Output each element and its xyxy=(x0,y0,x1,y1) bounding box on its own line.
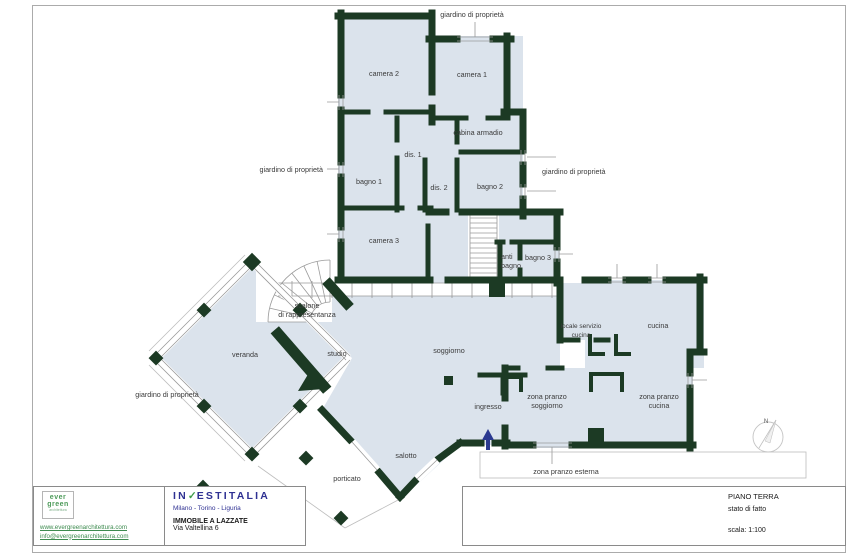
check-icon: ✓ xyxy=(188,490,197,502)
sheet-scale: scala: 1:100 xyxy=(728,527,779,534)
company-cities: Milano - Torino - Liguria xyxy=(173,505,297,512)
drawing-sheet: N camera 2 camera 1 cabina armadio bagno… xyxy=(0,0,853,560)
evergreen-website: www.evergreenarchitettura.com xyxy=(40,524,158,533)
titleblock-company-cell: IN✓ESTITALIA Milano - Torino - Liguria I… xyxy=(165,487,305,545)
evergreen-logo-sub: architettura xyxy=(43,508,73,512)
titleblock-logo-cell: ever green architettura www.evergreenarc… xyxy=(34,487,165,545)
project-name: IMMOBILE A LAZZATE xyxy=(173,518,297,525)
evergreen-email: info@evergreenarchitettura.com xyxy=(40,533,158,542)
evergreen-logo: ever green architettura xyxy=(42,491,74,519)
titleblock-right: PIANO TERRA stato di fatto scala: 1:100 xyxy=(462,486,846,546)
sheet-status: stato di fatto xyxy=(728,506,779,513)
sheet-border xyxy=(32,5,846,553)
sheet-title: PIANO TERRA xyxy=(728,492,779,501)
company-suffix: ESTITALIA xyxy=(197,490,270,502)
sheet-info: PIANO TERRA stato di fatto scala: 1:100 xyxy=(728,492,779,534)
titleblock-left: ever green architettura www.evergreenarc… xyxy=(33,486,306,546)
investitalia-logo: IN✓ESTITALIA xyxy=(173,490,297,502)
company-prefix: IN xyxy=(173,490,188,502)
project-address: Via Valtellina 6 xyxy=(173,525,297,532)
